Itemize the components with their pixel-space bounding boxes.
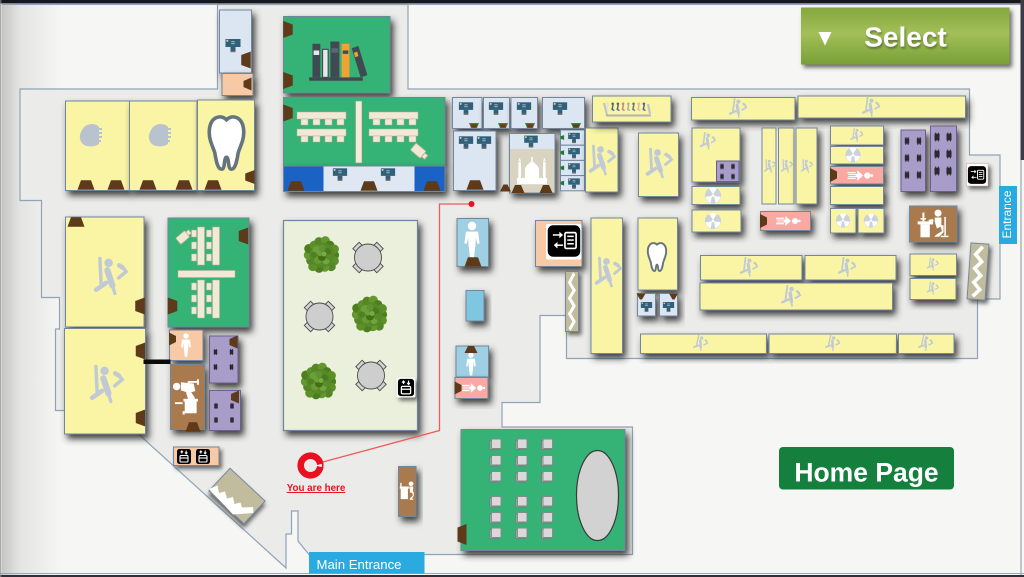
svg-text:You are here: You are here bbox=[287, 483, 346, 494]
svg-text:Main Entrance: Main Entrance bbox=[316, 557, 401, 572]
svg-text:Entrance: Entrance bbox=[1000, 190, 1014, 238]
svg-text:Home Page: Home Page bbox=[794, 458, 938, 488]
svg-text:Select: Select bbox=[864, 22, 947, 53]
